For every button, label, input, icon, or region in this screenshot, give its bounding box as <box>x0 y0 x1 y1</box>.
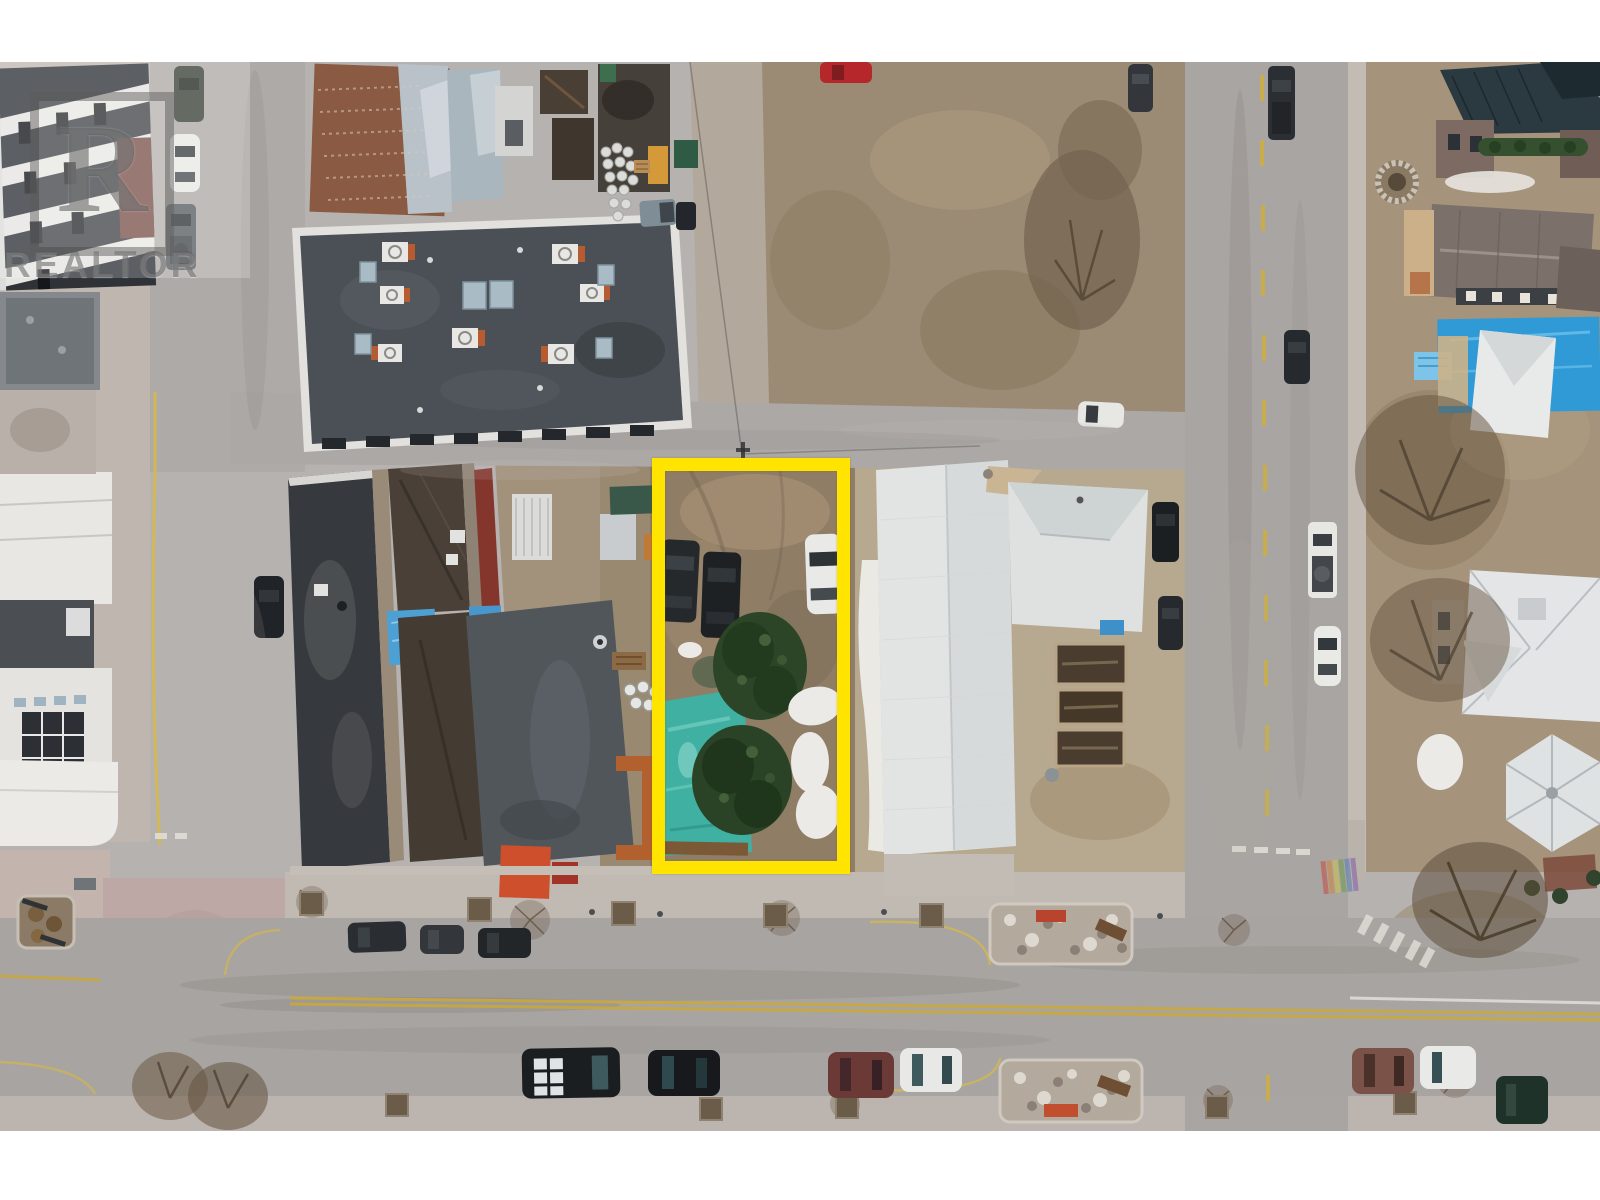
red-car-top <box>820 62 872 83</box>
rock-planter-bottom <box>1000 1060 1142 1122</box>
screenshot-canvas: R REALTOR <box>0 0 1600 1200</box>
parked-suv-olive <box>174 66 204 122</box>
dark-car-right-mid <box>1284 330 1310 384</box>
brown-car-far-right <box>1352 1048 1414 1094</box>
orange-bench-top <box>1036 910 1066 922</box>
orange-bench-bottom <box>1044 1104 1078 1117</box>
gray-roof-building-left <box>0 292 100 390</box>
dark-car-alley <box>676 202 696 230</box>
parked-car-main-2 <box>420 925 464 954</box>
parked-truck-gray <box>166 204 196 270</box>
letterbox-top <box>0 0 1600 62</box>
raised-garden-beds <box>1056 644 1126 766</box>
pickup-bluegray-alley <box>639 199 677 227</box>
orange-container <box>648 146 668 184</box>
bar-restaurant-complex <box>288 463 664 899</box>
condo-building-top-left <box>0 63 156 290</box>
dark-sedan-right-top <box>1128 64 1153 112</box>
maroon-car-bottom <box>828 1052 894 1098</box>
parked-car-main-1 <box>347 921 406 953</box>
white-pickup-right <box>1308 522 1337 598</box>
wooden-pallet <box>612 652 646 670</box>
flat-roof-commercial-building <box>292 214 692 452</box>
property-boundary-highlight <box>652 458 850 874</box>
white-car-right <box>1314 626 1341 686</box>
rock-planter-top <box>990 904 1132 964</box>
parked-car-main-3 <box>478 928 531 958</box>
green-dumpster <box>674 140 698 168</box>
dark-sedan-right-2 <box>1158 596 1183 650</box>
plaza-planter-bench <box>18 896 74 948</box>
parked-car-white-left <box>170 134 200 192</box>
tree-intersection-corner <box>1412 842 1548 958</box>
round-stone-planter <box>1375 160 1419 204</box>
black-suv-glass-roof <box>522 1047 621 1099</box>
black-suv-right <box>1152 502 1179 562</box>
letterbox-bottom <box>0 1131 1600 1200</box>
blue-tarp-small <box>1100 620 1124 635</box>
black-sedan-bottom <box>648 1050 720 1096</box>
tree-right-yard-1 <box>1355 395 1505 545</box>
white-car-bottom <box>900 1048 962 1092</box>
green-bin <box>600 64 616 82</box>
white-car-far-right <box>1420 1046 1476 1089</box>
dark-green-car-corner <box>1496 1076 1548 1124</box>
silver-shed <box>600 514 636 560</box>
dark-pickup-right-top <box>1268 66 1295 140</box>
tree-right-yard-2 <box>1370 578 1510 702</box>
